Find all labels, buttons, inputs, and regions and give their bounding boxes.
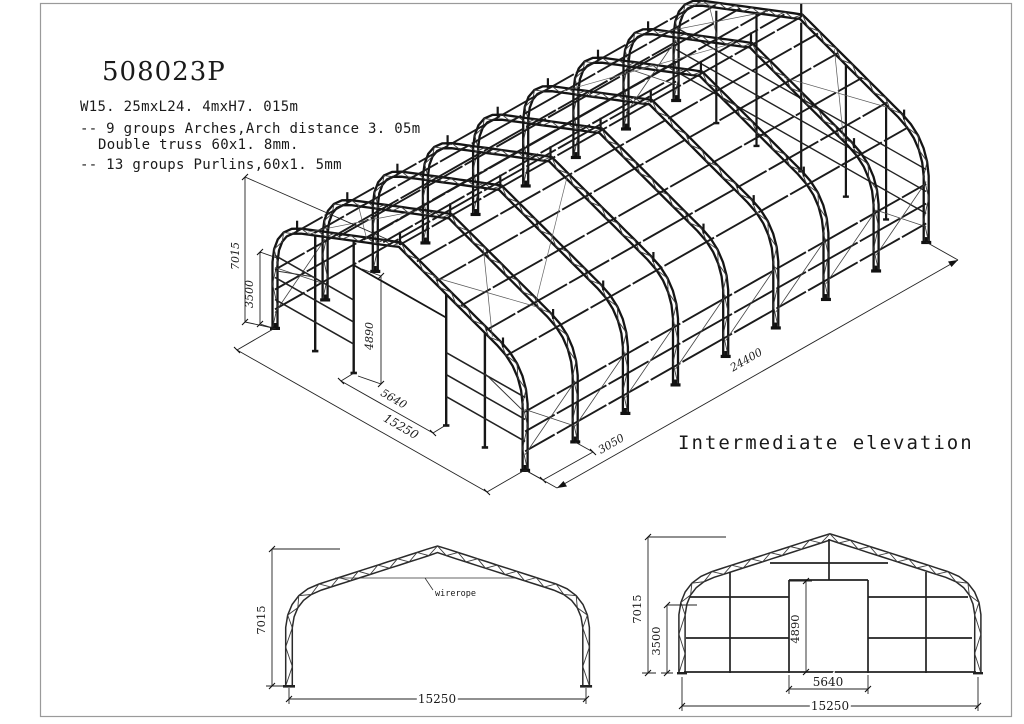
drawing-canvas: 508023P W15. 25mxL24. 4mxH7. 015m -- 9 g… [0,0,1024,724]
iso-dim-side-label: 3500 [243,280,256,308]
side-view-dimensions: 7015 15250 wirerope [254,546,589,706]
iso-dim-bay-label: 3050 [596,431,627,456]
drawing-number: 508023P [102,57,226,87]
side-dim-span-label: 15250 [418,692,456,706]
spec-size: W15. 25mxL24. 4mxH7. 015m [80,99,298,115]
iso-dim-door-width-label: 5640 [378,386,409,411]
side-dim-height-label: 7015 [254,605,268,634]
side-elevation-drawing [283,546,592,688]
spec-purlins: -- 13 groups Purlins,60x1. 5mm [80,157,342,173]
end-elevation-drawing [677,534,983,675]
spec-arches: -- 9 groups Arches,Arch distance 3. 05m [80,121,420,137]
end-dim-door-height-label: 4890 [788,614,802,643]
iso-caption: Intermediate elevation [678,432,974,454]
end-dim-door-width-label: 5640 [813,675,844,689]
iso-dim-span-label: 15250 [381,411,421,442]
end-dim-span-label: 15250 [811,699,849,713]
drawing-page: 508023P W15. 25mxL24. 4mxH7. 015m -- 9 g… [0,0,1024,724]
isometric-structure [270,0,931,472]
spec-truss: Double truss 60x1. 8mm. [98,137,299,153]
end-dim-height-label: 7015 [630,594,644,623]
iso-dim-height-label: 7015 [229,242,242,270]
iso-dim-length-label: 24400 [727,346,765,375]
end-dim-side-label: 3500 [649,626,663,655]
iso-dim-door-height-label: 4890 [363,322,376,351]
wirerope-label: wirerope [435,589,476,599]
